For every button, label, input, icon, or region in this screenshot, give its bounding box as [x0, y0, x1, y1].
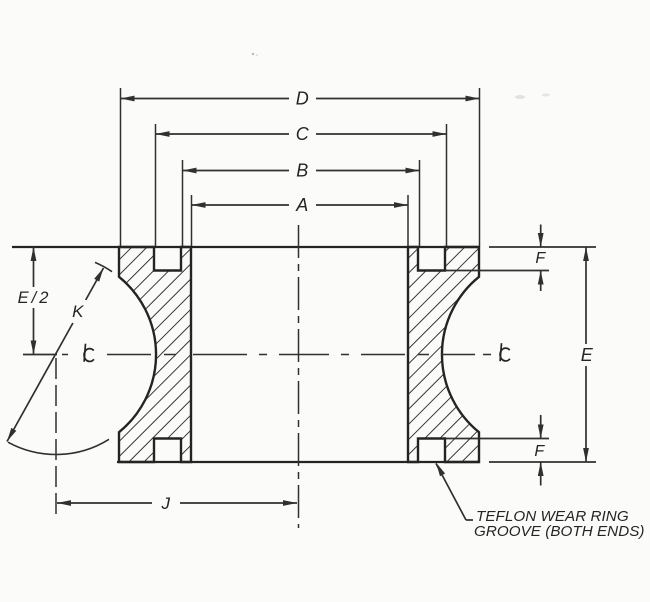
svg-text:B: B	[296, 161, 309, 181]
svg-text:J: J	[161, 494, 171, 513]
svg-text:F: F	[535, 250, 546, 267]
svg-text:A: A	[295, 195, 309, 215]
svg-text:GROOVE (BOTH ENDS): GROOVE (BOTH ENDS)	[474, 523, 645, 540]
svg-text:F: F	[534, 443, 545, 460]
svg-text:E/2: E/2	[18, 289, 52, 307]
svg-text:E: E	[581, 345, 594, 365]
svg-text:K: K	[72, 302, 84, 321]
svg-text:C: C	[296, 124, 310, 144]
svg-text:D: D	[296, 89, 310, 109]
